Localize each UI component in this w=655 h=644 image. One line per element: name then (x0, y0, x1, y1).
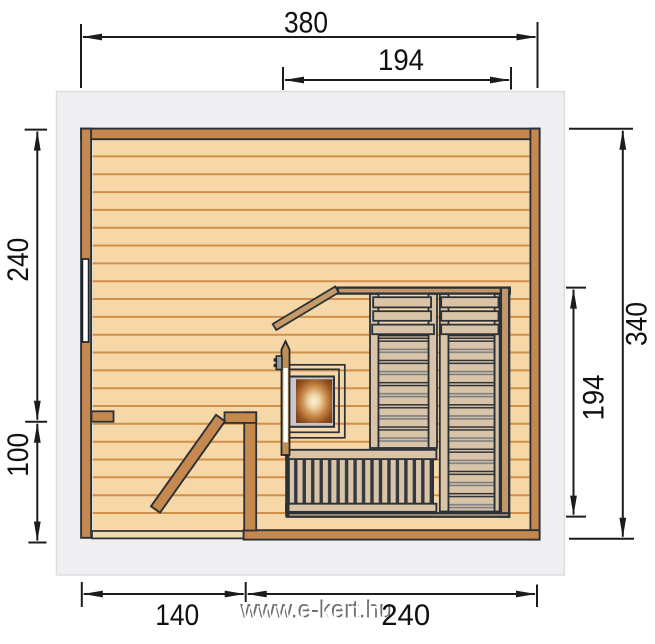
svg-text:194: 194 (378, 44, 424, 77)
svg-text:380: 380 (284, 6, 328, 39)
svg-text:340: 340 (620, 302, 653, 346)
svg-text:100: 100 (2, 433, 35, 477)
svg-text:240: 240 (381, 599, 430, 632)
svg-text:194: 194 (577, 375, 610, 421)
svg-text:www.e-kert.hu: www.e-kert.hu (241, 598, 394, 626)
svg-text:240: 240 (2, 238, 35, 282)
svg-text:140: 140 (155, 599, 199, 632)
